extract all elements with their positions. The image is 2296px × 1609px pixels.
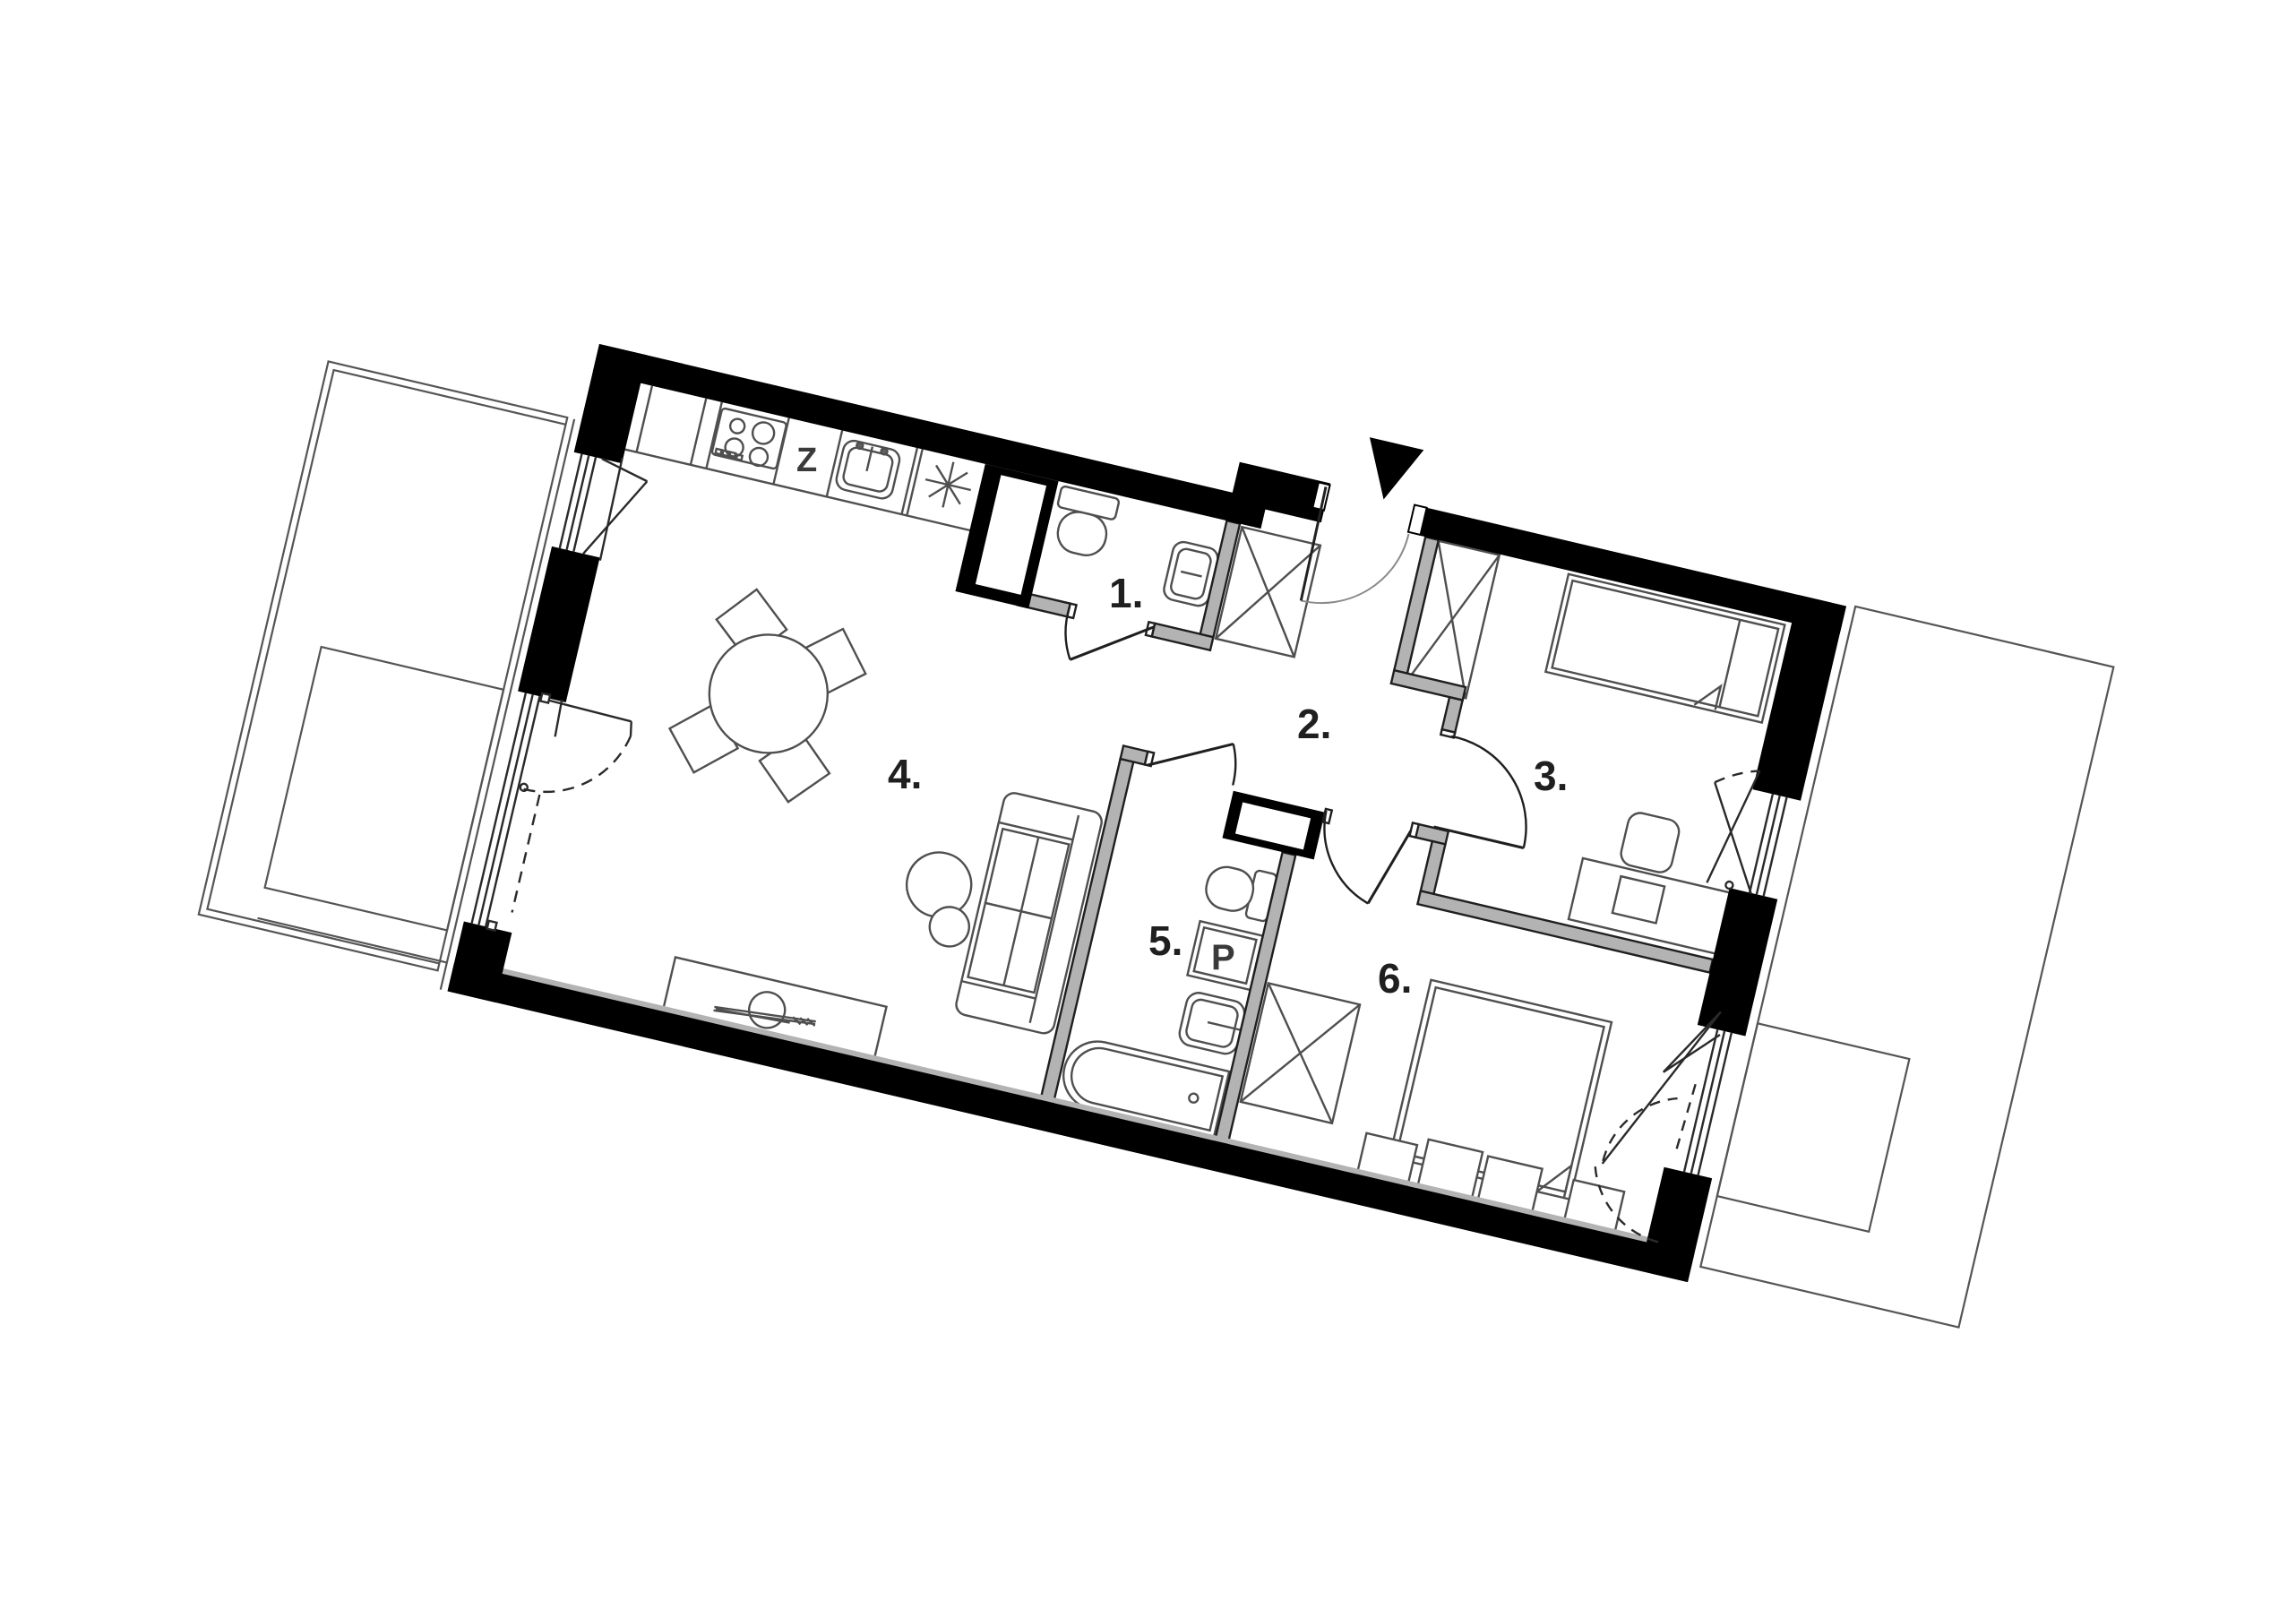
svg-text:Z: Z xyxy=(796,442,817,479)
svg-text:2.: 2. xyxy=(1297,701,1331,747)
svg-text:5.: 5. xyxy=(1148,917,1182,964)
svg-text:6.: 6. xyxy=(1378,955,1412,1002)
svg-text:1.: 1. xyxy=(1109,570,1143,616)
svg-text:P: P xyxy=(1211,938,1235,977)
svg-text:4.: 4. xyxy=(888,751,922,797)
svg-text:3.: 3. xyxy=(1534,753,1568,799)
